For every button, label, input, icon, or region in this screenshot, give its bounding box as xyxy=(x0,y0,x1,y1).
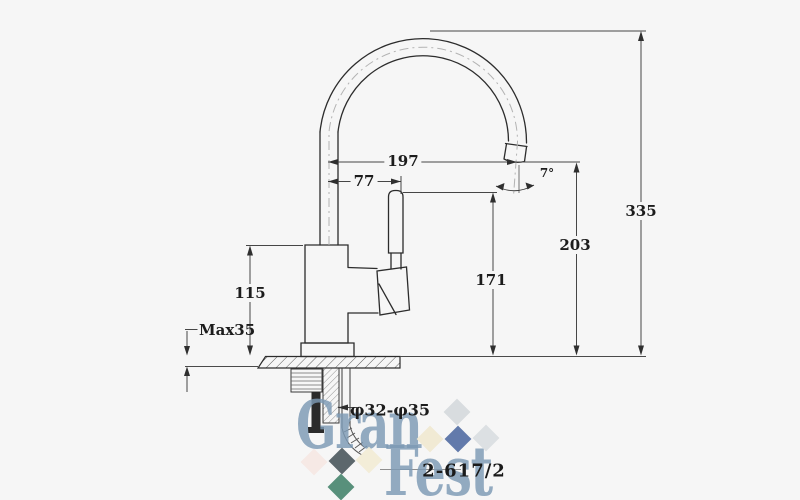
dimension-arrowheads xyxy=(184,31,644,411)
spout-outer-arc xyxy=(320,39,527,143)
dim-label-height-body: 115 xyxy=(231,284,268,302)
handle-lever xyxy=(389,191,404,254)
dim-label-handle-offset: 77 xyxy=(351,172,378,190)
handle-mount xyxy=(348,268,378,314)
dim-label-outlet-angle: 7° xyxy=(540,166,554,180)
lever-neck xyxy=(391,253,401,269)
handle-housing-seam xyxy=(379,284,396,315)
centerlines xyxy=(329,47,518,245)
dim-label-height-total: 335 xyxy=(622,202,659,220)
model-number: 2-617/2 xyxy=(422,461,506,482)
dim-label-counter-max: Max35 xyxy=(199,321,255,339)
spout-inner-arc xyxy=(338,56,509,141)
faucet-body xyxy=(305,245,348,343)
dim-label-height-handle: 171 xyxy=(472,271,509,289)
countertop xyxy=(185,357,646,369)
dim-label-spout-reach: 197 xyxy=(384,152,421,170)
dim-label-hole-diameter: φ32-φ35 xyxy=(350,401,430,420)
dim-label-height-outlet: 203 xyxy=(556,236,593,254)
handle-housing xyxy=(377,267,410,315)
base-flange xyxy=(301,343,354,357)
technical-drawing: Gran Fest 197 77 7° 335 203 171 115 Max3… xyxy=(0,0,800,500)
